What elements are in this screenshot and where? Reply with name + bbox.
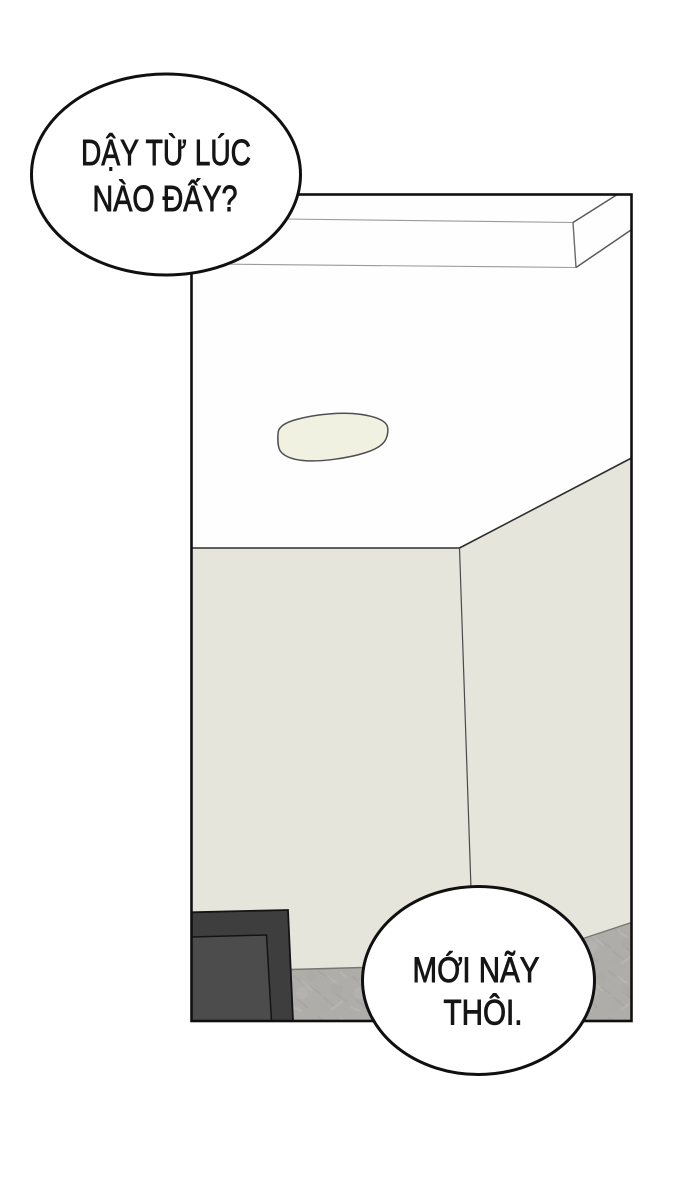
svg-text:NÀO ĐẤY?: NÀO ĐẤY? [93, 178, 238, 219]
svg-text:MỚI NÃY: MỚI NÃY [413, 950, 540, 990]
svg-text:DẬY TỪ LÚC: DẬY TỪ LÚC [81, 132, 251, 173]
svg-text:THÔI.: THÔI. [444, 993, 523, 1033]
